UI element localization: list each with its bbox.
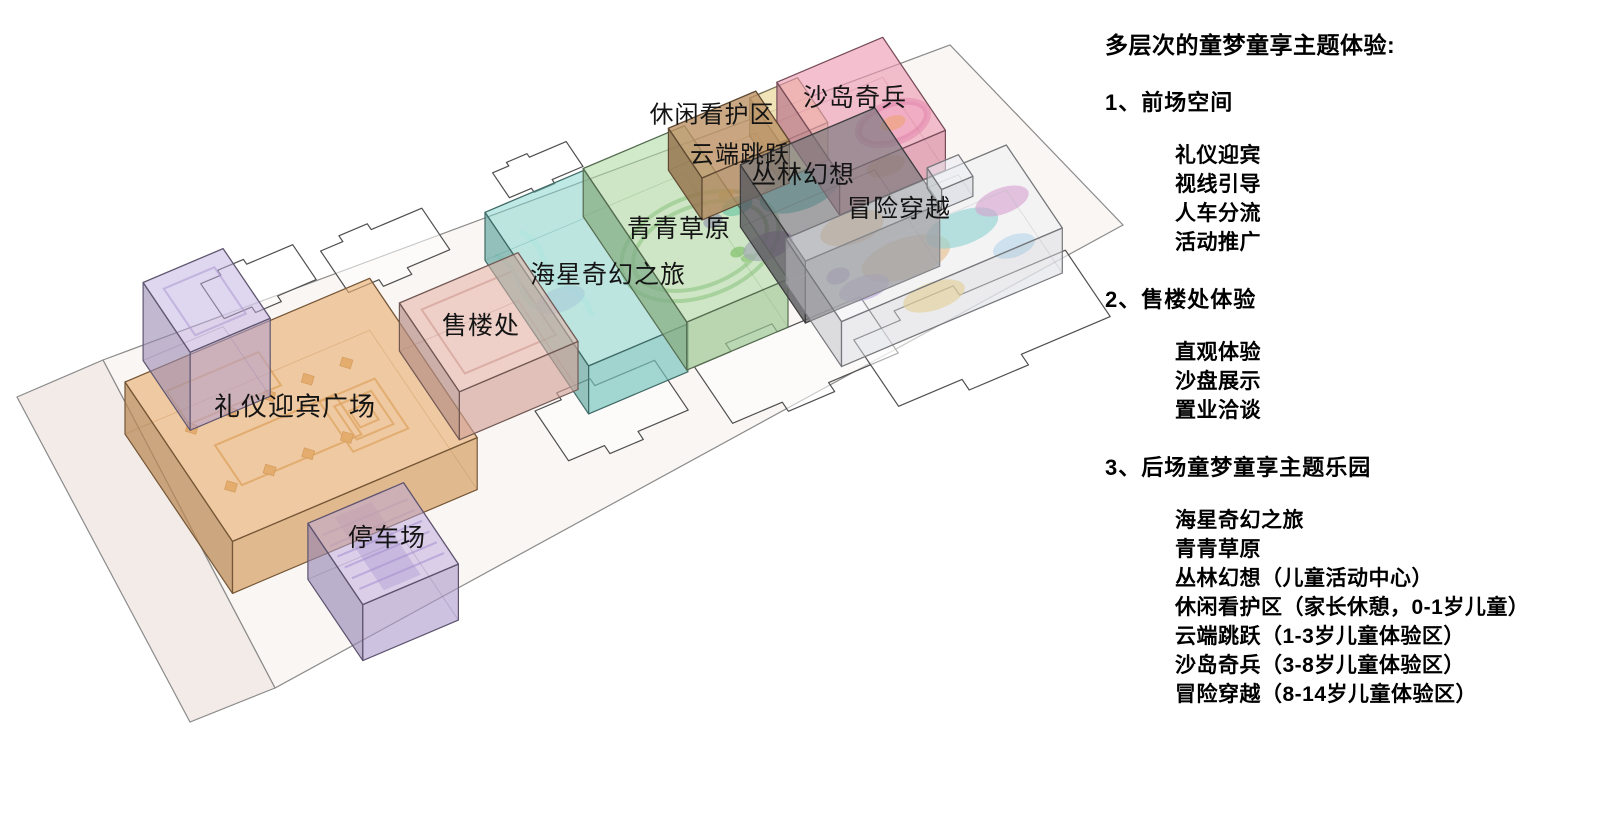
section-item: 礼仪迎宾 [1175,141,1585,170]
legend-panel: 多层次的童梦童享主题体验: 1、前场空间 礼仪迎宾 视线引导 人车分流 活动推广… [1105,30,1585,737]
section-heading: 2、售楼处体验 [1105,285,1585,315]
section-item: 海星奇幻之旅 [1175,506,1585,535]
zone-label-welcome-plaza: 礼仪迎宾广场 [214,387,376,424]
section-item: 视线引导 [1175,170,1585,199]
section-items: 直观体验 沙盘展示 置业洽谈 [1105,338,1585,425]
section-item: 直观体验 [1175,338,1585,367]
zone-label-adventure-cross: 冒险穿越 [847,189,951,225]
slide: 礼仪迎宾广场 售楼处 停车场 海星奇幻之旅 青青草原 休闲看护区 云端跳跃 沙岛… [0,0,1600,816]
section-item: 置业洽谈 [1175,396,1585,425]
zone-label-starfish-journey: 海星奇幻之旅 [530,255,686,291]
section-item: 丛林幻想（儿童活动中心） [1175,564,1585,593]
zone-label-sales-office: 售楼处 [442,306,520,342]
section-item: 青青草原 [1175,535,1585,564]
panel-section-sales-office: 2、售楼处体验 直观体验 沙盘展示 置业洽谈 [1105,285,1585,425]
zone-label-jungle-fantasy: 丛林幻想 [751,155,855,191]
section-heading: 3、后场童梦童享主题乐园 [1105,453,1585,483]
zone-label-grassland: 青青草原 [627,209,731,245]
panel-title: 多层次的童梦童享主题体验: [1105,30,1585,60]
section-items: 礼仪迎宾 视线引导 人车分流 活动推广 [1105,141,1585,257]
panel-section-front-yard: 1、前场空间 礼仪迎宾 视线引导 人车分流 活动推广 [1105,88,1585,257]
zone-label-leisure-care: 休闲看护区 [650,95,775,130]
section-item: 休闲看护区（家长休憩，0-1岁儿童） [1175,593,1585,622]
section-item: 人车分流 [1175,199,1585,228]
section-item: 云端跳跃（1-3岁儿童体验区） [1175,622,1585,651]
section-item: 活动推广 [1175,228,1585,257]
section-item: 冒险穿越（8-14岁儿童体验区） [1175,680,1585,709]
panel-section-theme-park: 3、后场童梦童享主题乐园 海星奇幻之旅 青青草原 丛林幻想（儿童活动中心） 休闲… [1105,453,1585,709]
section-item: 沙盘展示 [1175,367,1585,396]
section-item: 沙岛奇兵（3-8岁儿童体验区） [1175,651,1585,680]
zone-label-sand-island: 沙岛奇兵 [803,78,907,114]
section-heading: 1、前场空间 [1105,88,1585,118]
section-items: 海星奇幻之旅 青青草原 丛林幻想（儿童活动中心） 休闲看护区（家长休憩，0-1岁… [1105,506,1585,709]
zone-label-parking: 停车场 [348,518,426,554]
